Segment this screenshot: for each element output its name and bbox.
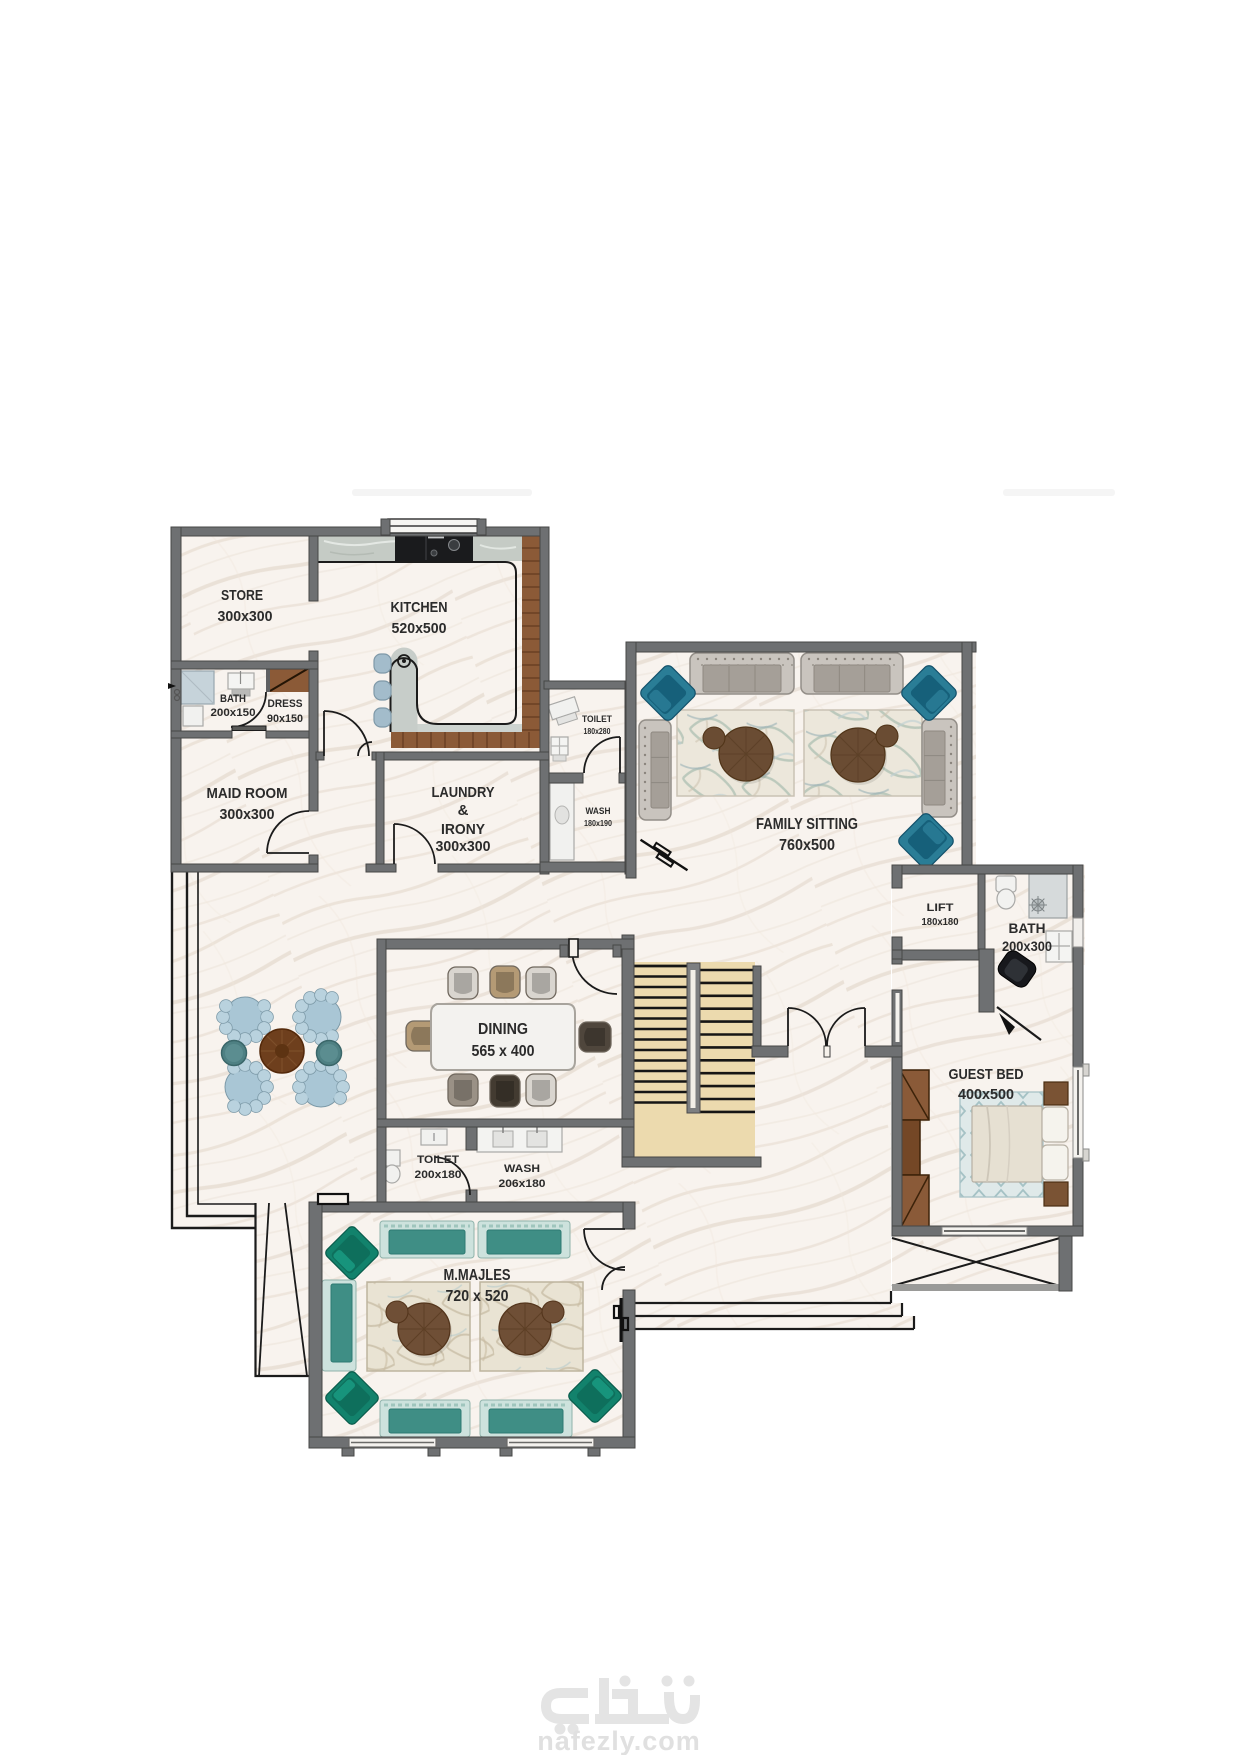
svg-text:&: & [458,802,469,819]
svg-text:90x150: 90x150 [267,713,303,725]
svg-text:720 x 520: 720 x 520 [446,1288,509,1305]
svg-text:180x190: 180x190 [584,818,612,828]
svg-text:KITCHEN: KITCHEN [391,599,448,616]
svg-text:206x180: 206x180 [499,1178,546,1190]
svg-text:180x180: 180x180 [922,916,959,928]
svg-text:STORE: STORE [221,587,263,604]
svg-text:760x500: 760x500 [779,837,835,854]
svg-text:DINING: DINING [478,1021,528,1038]
svg-text:FAMILY SITTING: FAMILY SITTING [756,816,858,833]
svg-text:520x500: 520x500 [392,620,447,637]
svg-text:180x280: 180x280 [584,726,611,736]
svg-text:IRONY: IRONY [441,821,485,838]
svg-text:565 x 400: 565 x 400 [472,1043,535,1060]
svg-text:BATH: BATH [220,693,246,705]
svg-text:400x500: 400x500 [958,1086,1014,1103]
svg-text:M.MAJLES: M.MAJLES [444,1267,511,1284]
svg-text:BATH: BATH [1009,921,1046,936]
svg-text:GUEST BED: GUEST BED [949,1066,1024,1083]
svg-text:WASH: WASH [586,806,611,816]
svg-text:DRESS: DRESS [268,698,303,710]
svg-text:300x300: 300x300 [220,806,275,823]
svg-text:200x180: 200x180 [415,1169,462,1181]
svg-text:LAUNDRY: LAUNDRY [432,784,495,801]
svg-text:300x300: 300x300 [218,608,273,625]
svg-text:TOILET: TOILET [417,1154,459,1166]
svg-text:TOILET: TOILET [582,714,612,724]
svg-text:300x300: 300x300 [436,838,491,855]
svg-text:200x300: 200x300 [1002,939,1052,954]
svg-text:nafezly.com: nafezly.com [537,1726,701,1755]
svg-text:LIFT: LIFT [927,902,954,914]
svg-text:WASH: WASH [504,1163,540,1175]
svg-text:200x150: 200x150 [211,707,256,719]
svg-text:MAID ROOM: MAID ROOM [207,785,288,802]
